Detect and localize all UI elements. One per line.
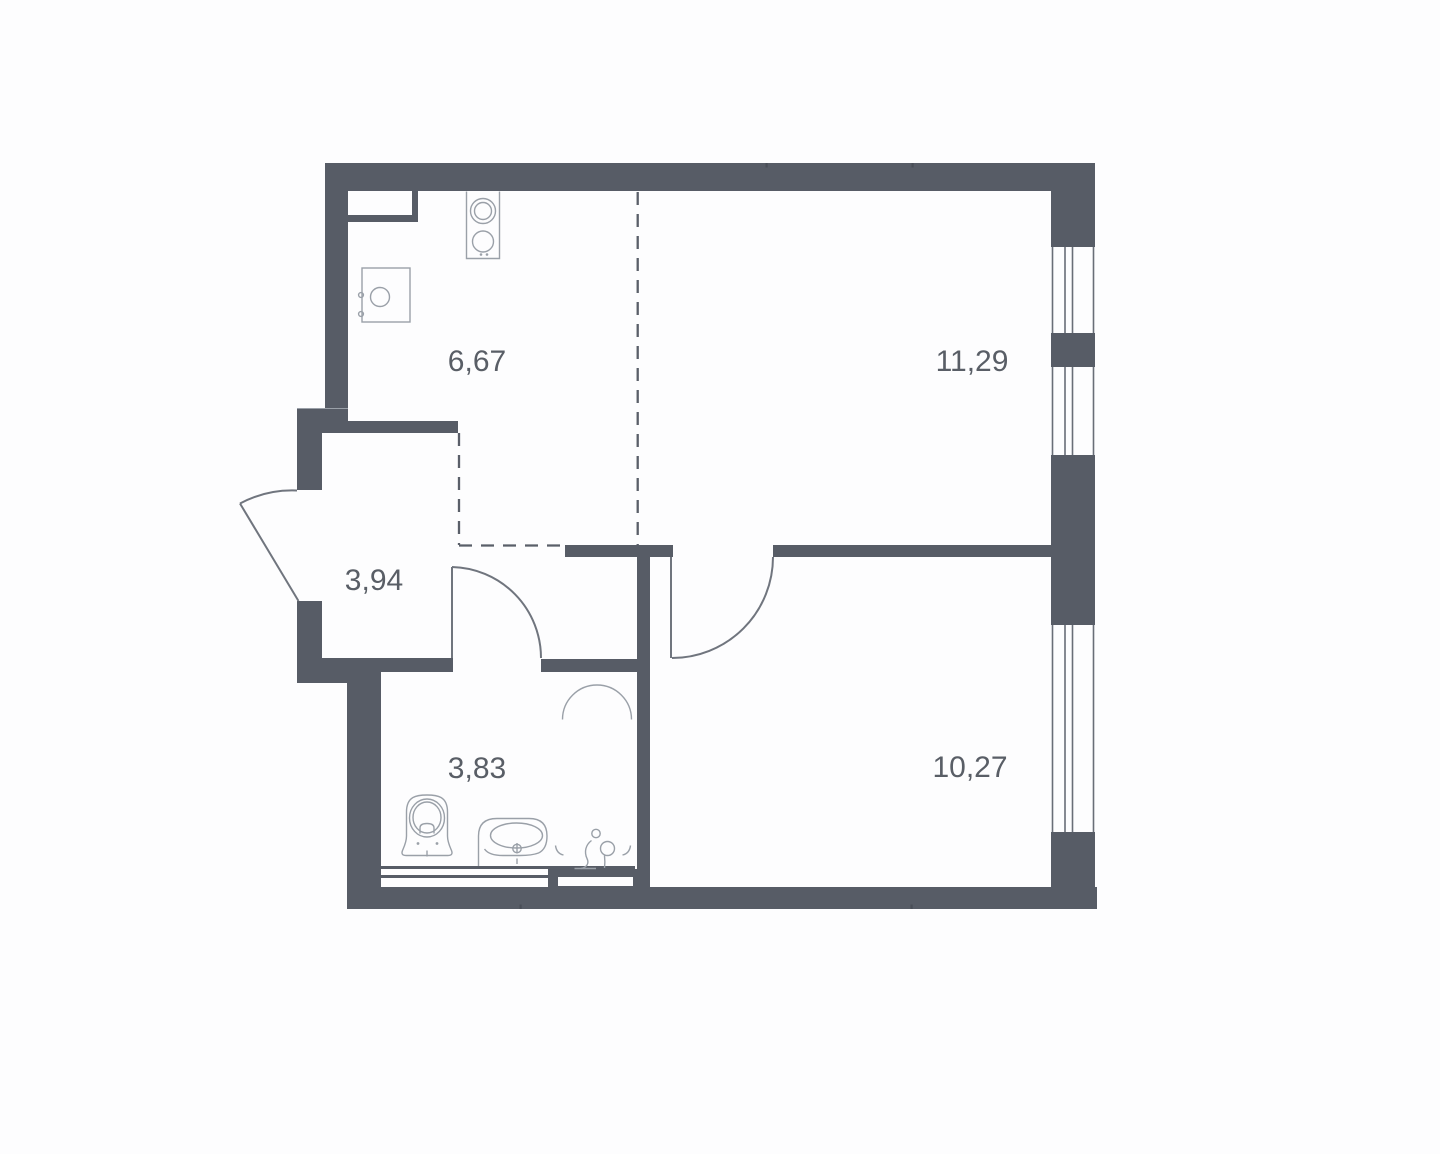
wall-bathroom-door-band	[541, 659, 637, 672]
bathroom-door-arc	[452, 567, 541, 658]
bathroom-sink-icon	[479, 819, 548, 867]
floor-plan-canvas: 6,67 11,29 3,94 3,83 10,27	[0, 0, 1440, 1154]
shaft-niche-bottom	[348, 215, 418, 222]
stove-icon	[467, 192, 500, 259]
floor-drain-faucet-icon	[556, 829, 631, 868]
entrance-door-leaf	[240, 504, 299, 602]
wall-left-upper	[325, 163, 348, 408]
floor-plan: 6,67 11,29 3,94 3,83 10,27	[0, 0, 1440, 1154]
wall-divider-left	[565, 545, 673, 557]
kitchen-sink-icon	[359, 268, 410, 322]
shower-arc-icon	[563, 685, 632, 720]
bedroom-door	[671, 557, 773, 658]
toilet-icon	[402, 795, 452, 857]
wall-bedroom-bathroom	[637, 557, 650, 887]
kitchen-area-label: 6,67	[448, 345, 506, 378]
wall-divider-right	[773, 545, 1051, 557]
bathroom-floor-edge	[381, 866, 635, 869]
wall-right-pier1	[1051, 333, 1095, 367]
wall-right-seg1	[1051, 163, 1095, 247]
window-3	[1051, 625, 1095, 832]
bathroom-door	[452, 567, 541, 658]
living-room-area-label: 11,29	[936, 345, 1009, 378]
panel-joint-ticks	[520, 163, 914, 909]
hallway-area-label: 3,94	[345, 564, 403, 597]
wall-bottom	[347, 887, 1097, 909]
window-2	[1051, 367, 1095, 455]
outer-walls	[297, 163, 1097, 909]
window-1	[1051, 247, 1095, 333]
entrance-door	[240, 490, 299, 601]
entrance-door-arc	[240, 490, 297, 503]
bathroom-fixtures	[402, 685, 632, 869]
wall-hallway-top	[322, 421, 458, 433]
bathroom-area-label: 3,83	[448, 752, 506, 785]
bedroom-door-arc	[672, 557, 773, 658]
wall-hallway-bottom	[348, 658, 453, 672]
room-labels: 6,67 11,29 3,94 3,83 10,27	[345, 345, 1009, 785]
wall-right-seg3	[1051, 832, 1095, 909]
wall-right-seg2	[1051, 455, 1095, 625]
duct-slot	[558, 877, 633, 886]
wall-top	[325, 163, 1095, 191]
wall-bathroom-left	[347, 672, 381, 887]
wall-entrance-pier	[297, 430, 322, 490]
kitchen-fixtures	[359, 192, 500, 323]
bedroom-area-label: 10,27	[932, 751, 1007, 784]
duct-line	[381, 875, 548, 878]
wall-hallway-bottom-left	[297, 658, 352, 683]
wall-left-lower	[297, 601, 322, 658]
